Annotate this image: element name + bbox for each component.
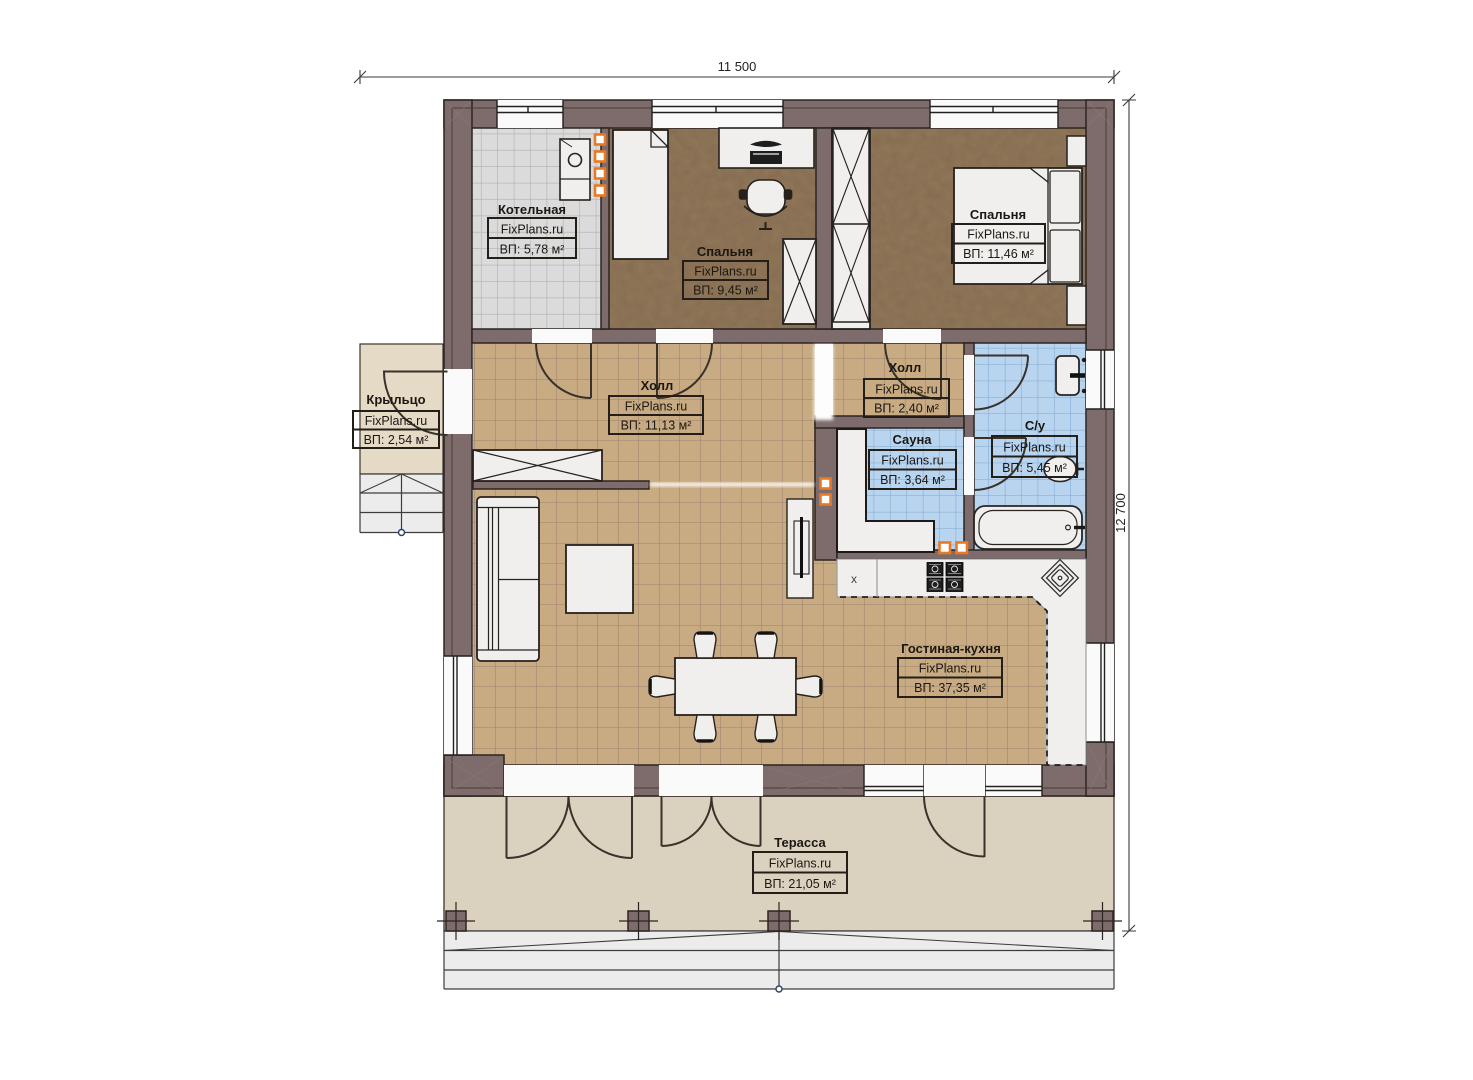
svg-text:Сауна: Сауна [892, 432, 932, 447]
svg-text:11 500: 11 500 [718, 59, 757, 74]
svg-text:Холл: Холл [641, 378, 674, 393]
svg-text:Холл: Холл [889, 360, 922, 375]
svg-text:x: x [851, 572, 857, 586]
svg-text:ВП: 11,13 м²: ВП: 11,13 м² [621, 419, 692, 433]
svg-text:ВП: 5,78 м²: ВП: 5,78 м² [500, 243, 565, 257]
svg-text:FixPlans.ru: FixPlans.ru [501, 223, 564, 237]
svg-text:12 700: 12 700 [1113, 493, 1128, 533]
svg-text:ВП: 37,35 м²: ВП: 37,35 м² [914, 681, 986, 695]
svg-text:ВП: 11,46 м²: ВП: 11,46 м² [963, 247, 1034, 261]
svg-text:Гостиная-кухня: Гостиная-кухня [901, 641, 1001, 656]
svg-text:FixPlans.ru: FixPlans.ru [625, 400, 688, 414]
svg-text:С/у: С/у [1025, 418, 1046, 433]
svg-text:ВП: 3,64 м²: ВП: 3,64 м² [880, 473, 945, 487]
svg-text:ВП: 21,05 м²: ВП: 21,05 м² [764, 877, 836, 891]
svg-text:ВП: 2,40 м²: ВП: 2,40 м² [874, 402, 939, 416]
svg-text:Терасса: Терасса [774, 835, 826, 850]
svg-text:FixPlans.ru: FixPlans.ru [875, 383, 938, 397]
svg-text:FixPlans.ru: FixPlans.ru [967, 228, 1030, 242]
svg-text:ВП: 9,45 м²: ВП: 9,45 м² [693, 284, 758, 298]
svg-text:FixPlans.ru: FixPlans.ru [694, 265, 757, 279]
svg-text:Спальня: Спальня [970, 207, 1026, 222]
svg-text:ВП: 5,45 м²: ВП: 5,45 м² [1002, 461, 1067, 475]
svg-text:Спальня: Спальня [697, 244, 753, 259]
svg-text:FixPlans.ru: FixPlans.ru [365, 414, 428, 428]
svg-text:FixPlans.ru: FixPlans.ru [769, 857, 832, 871]
svg-text:Крыльцо: Крыльцо [366, 392, 425, 407]
svg-text:FixPlans.ru: FixPlans.ru [919, 662, 982, 676]
svg-text:FixPlans.ru: FixPlans.ru [1003, 441, 1066, 455]
svg-text:ВП: 2,54 м²: ВП: 2,54 м² [364, 433, 429, 447]
svg-text:FixPlans.ru: FixPlans.ru [881, 454, 944, 468]
svg-text:Котельная: Котельная [498, 202, 566, 217]
